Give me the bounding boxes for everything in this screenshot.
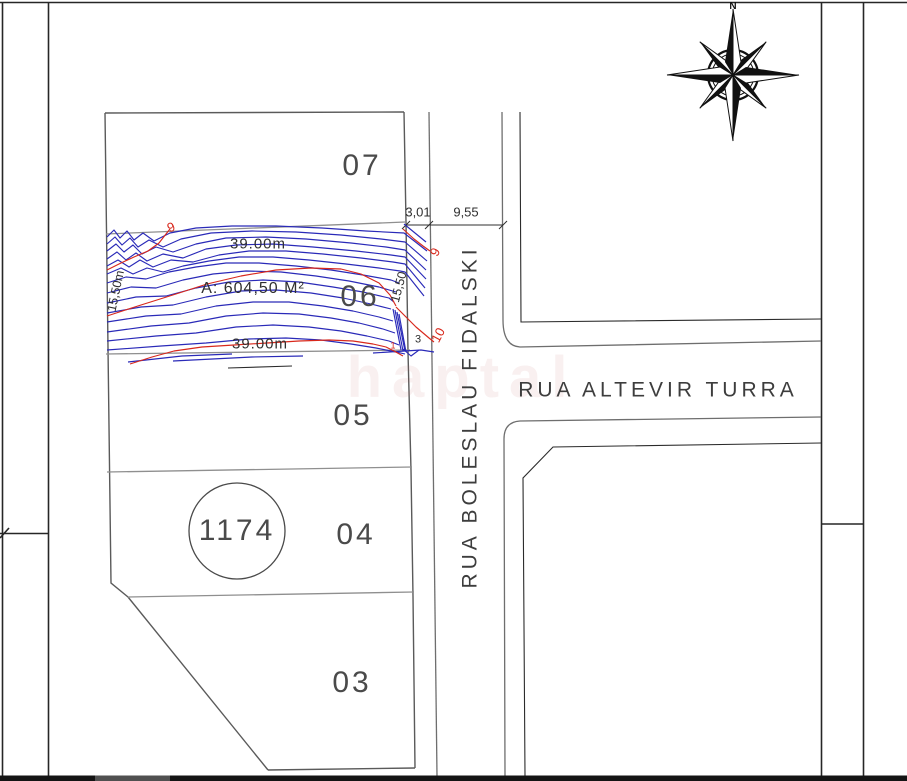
- dimension-lines: [402, 221, 507, 229]
- front-width-label: 39.00m: [230, 237, 286, 252]
- strip-dimension-label: 3,01: [405, 206, 430, 219]
- plat-drawing-canvas: haptal 07 06 05 04 03 1174 RUA BOLESLAU …: [0, 0, 907, 781]
- lot-04-label: 04: [336, 520, 375, 550]
- street-width-dimension-label: 9,55: [453, 206, 478, 219]
- contour-3-label: 3: [415, 335, 421, 346]
- contour-1-label: 1: [390, 342, 395, 351]
- back-width-label: 39.00m: [232, 337, 288, 352]
- lot-03-label: 03: [332, 668, 371, 698]
- compass-rose-icon: [667, 9, 799, 141]
- lot-07-label: 07: [342, 151, 381, 181]
- lot-06-label: 06: [340, 282, 379, 312]
- lot-05-label: 05: [333, 401, 372, 431]
- street-name-vertical: RUA BOLESLAU FIDALSKI: [460, 245, 481, 588]
- area-label: A: 604,50 M²: [201, 281, 305, 297]
- street-name-horizontal: RUA ALTEVIR TURRA: [518, 380, 798, 401]
- bottom-edge-bar: [0, 776, 907, 781]
- block-number-label: 1174: [199, 516, 276, 546]
- compass-north-label: N: [729, 2, 736, 12]
- street-lines: [429, 112, 821, 776]
- contour-lines-black: [228, 366, 292, 368]
